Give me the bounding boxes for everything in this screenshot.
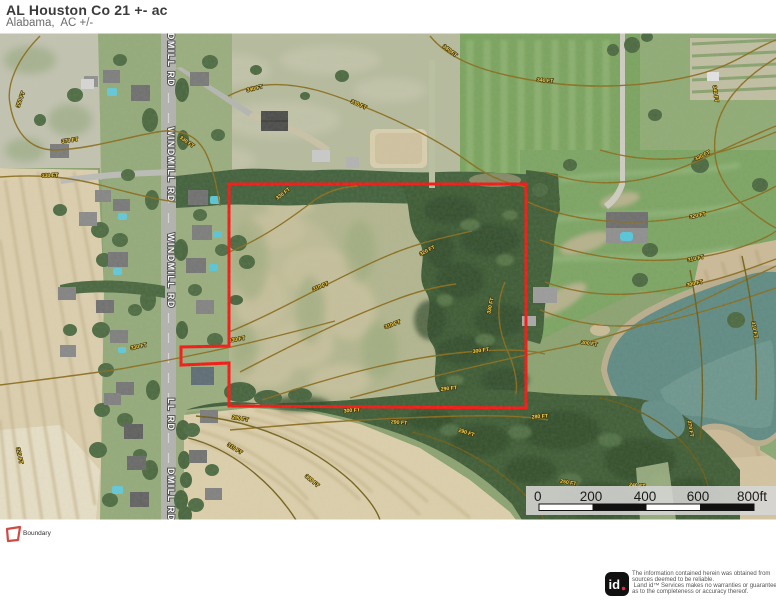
svg-text:600: 600 <box>687 489 710 504</box>
svg-text:800ft: 800ft <box>737 489 767 504</box>
svg-text:200: 200 <box>580 489 603 504</box>
svg-text:id: id <box>609 577 621 592</box>
svg-text:0: 0 <box>534 489 542 504</box>
svg-text:400: 400 <box>634 489 657 504</box>
